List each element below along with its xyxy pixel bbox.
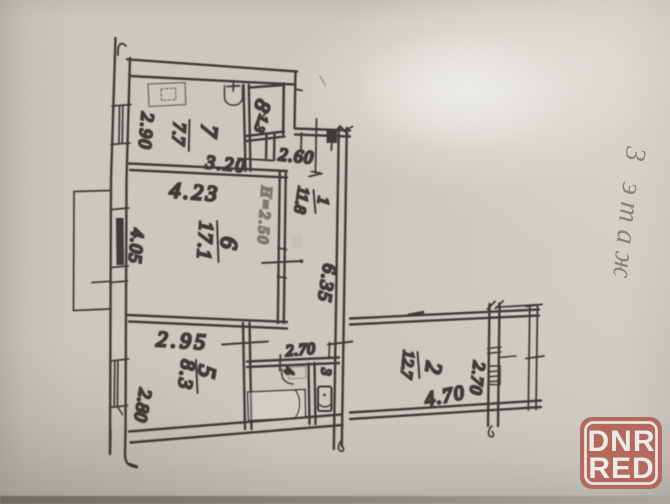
svg-text:2.70: 2.70 (285, 340, 316, 360)
svg-text:4.05: 4.05 (125, 228, 148, 265)
svg-text:12.7: 12.7 (397, 350, 417, 381)
svg-text:RED: RED (588, 452, 654, 485)
svg-text:4: 4 (280, 367, 296, 375)
svg-text:4.23: 4.23 (169, 177, 221, 206)
svg-text:2.95: 2.95 (156, 326, 210, 355)
svg-text:17.1: 17.1 (192, 221, 217, 261)
svg-text:8.3: 8.3 (173, 358, 199, 391)
svg-text:2.90: 2.90 (135, 112, 158, 151)
svg-text:7.7: 7.7 (168, 122, 190, 147)
svg-text:2.60: 2.60 (278, 144, 315, 168)
svg-text:3: 3 (317, 367, 333, 376)
